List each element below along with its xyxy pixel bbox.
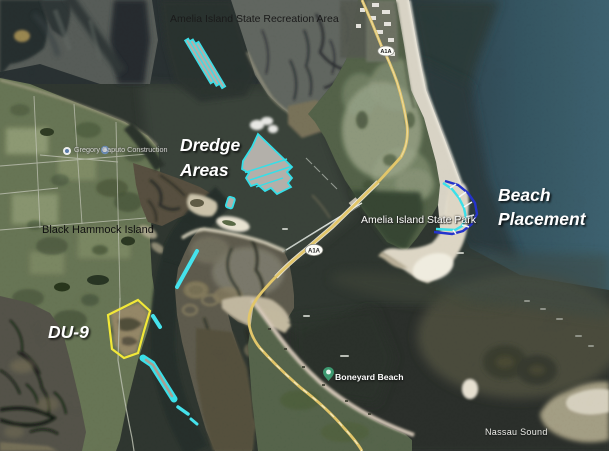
svg-text:A1A: A1A <box>380 49 391 55</box>
svg-text:A1A: A1A <box>308 248 321 254</box>
